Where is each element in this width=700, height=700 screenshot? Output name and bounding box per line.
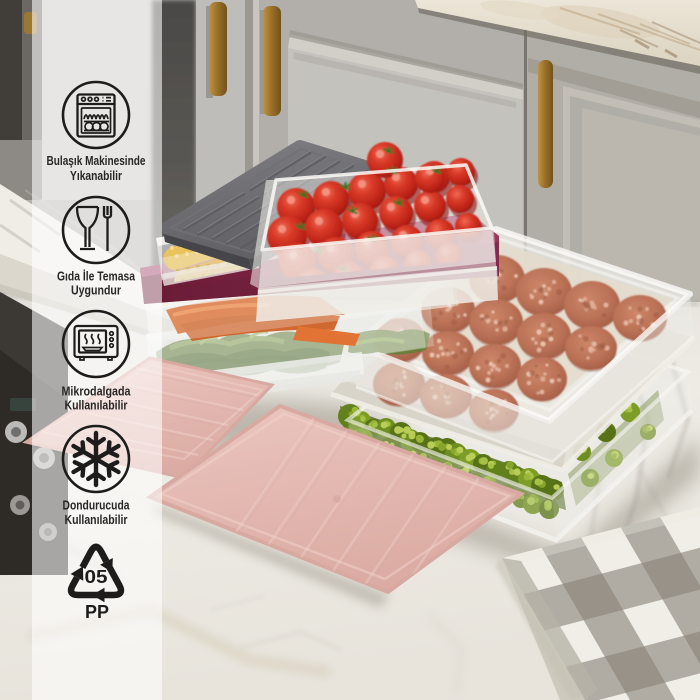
svg-text:Mikrodalgada: Mikrodalgada <box>62 385 132 399</box>
svg-text:Yıkanabilir: Yıkanabilir <box>70 169 122 183</box>
svg-text:Bulaşık Makinesinde: Bulaşık Makinesinde <box>47 154 146 168</box>
svg-text:Kullanılabilir: Kullanılabilir <box>65 513 128 527</box>
svg-text:05: 05 <box>85 567 108 587</box>
svg-text:Kullanılabilir: Kullanılabilir <box>65 399 128 413</box>
svg-text:Gıda İle Temasa: Gıda İle Temasa <box>57 269 136 284</box>
svg-text:Dondurucuda: Dondurucuda <box>63 499 131 513</box>
svg-text:Uygundur: Uygundur <box>71 284 121 298</box>
svg-text:PP: PP <box>85 601 109 622</box>
